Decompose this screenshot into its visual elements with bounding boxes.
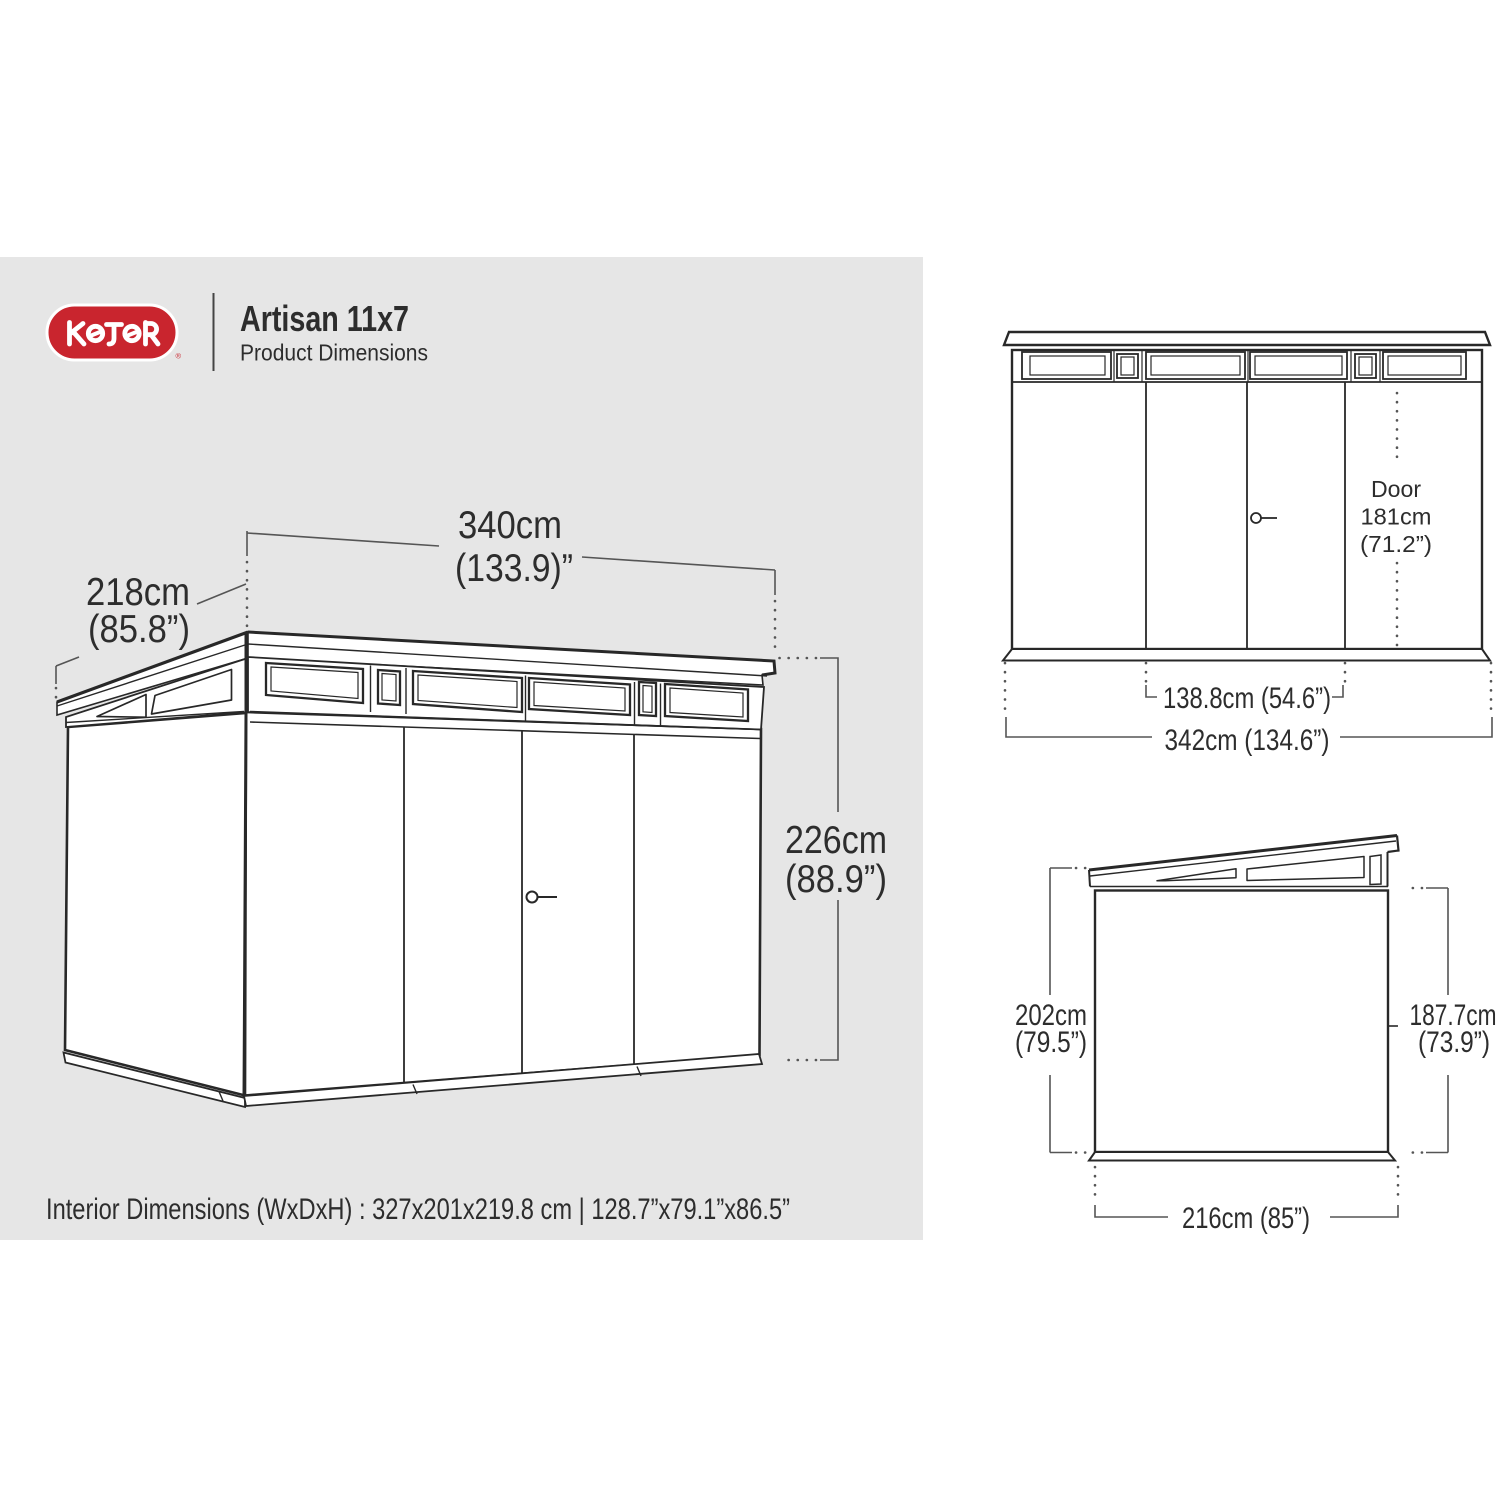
svg-text:(85.8”): (85.8”) xyxy=(88,608,190,651)
svg-text:138.8cm (54.6”): 138.8cm (54.6”) xyxy=(1163,682,1331,715)
svg-text:(79.5”): (79.5”) xyxy=(1015,1026,1087,1059)
svg-text:®: ® xyxy=(176,352,182,361)
svg-text:340cm: 340cm xyxy=(458,504,562,547)
svg-text:Product Dimensions: Product Dimensions xyxy=(240,340,428,366)
svg-text:Door: Door xyxy=(1371,476,1421,502)
svg-text:(133.9)”: (133.9)” xyxy=(455,547,573,590)
svg-text:(73.9”): (73.9”) xyxy=(1418,1026,1490,1059)
svg-text:(71.2”): (71.2”) xyxy=(1360,531,1432,557)
svg-text:216cm (85”): 216cm (85”) xyxy=(1182,1202,1310,1235)
svg-text:Artisan 11x7: Artisan 11x7 xyxy=(240,298,409,339)
svg-text:226cm: 226cm xyxy=(785,819,887,862)
svg-text:181cm: 181cm xyxy=(1361,504,1432,530)
svg-text:Interior Dimensions (WxDxH) :: Interior Dimensions (WxDxH) : 327x201x21… xyxy=(46,1193,790,1226)
svg-text:342cm (134.6”): 342cm (134.6”) xyxy=(1165,724,1330,757)
svg-text:(88.9”): (88.9”) xyxy=(785,858,887,901)
